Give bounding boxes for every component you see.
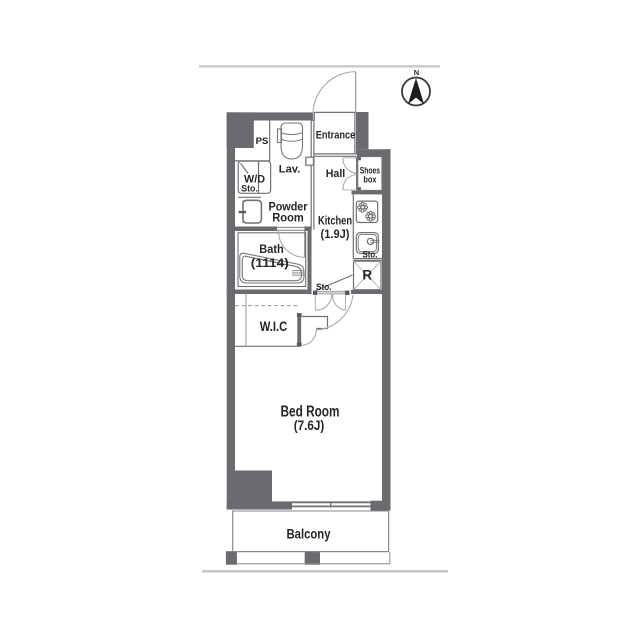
svg-text:Sto.: Sto. — [363, 250, 378, 261]
svg-text:Hall: Hall — [326, 168, 346, 180]
svg-text:Sto.: Sto. — [241, 183, 258, 194]
svg-text:(1114): (1114) — [251, 256, 289, 270]
svg-text:Room: Room — [272, 211, 304, 225]
svg-text:(7.6J): (7.6J) — [294, 417, 325, 433]
svg-text:Balcony: Balcony — [287, 527, 331, 542]
svg-text:Entrance: Entrance — [316, 130, 356, 142]
svg-text:PS: PS — [256, 136, 269, 147]
svg-text:Lav.: Lav. — [279, 163, 301, 175]
svg-text:(1.9J): (1.9J) — [321, 227, 350, 241]
svg-text:box: box — [363, 175, 377, 186]
svg-text:W.I.C: W.I.C — [260, 319, 288, 334]
svg-text:Bath: Bath — [259, 242, 284, 256]
svg-text:N: N — [414, 68, 419, 77]
svg-text:R: R — [362, 268, 372, 283]
svg-text:Sto.: Sto. — [316, 282, 332, 293]
svg-text:Kitchen: Kitchen — [318, 213, 352, 227]
